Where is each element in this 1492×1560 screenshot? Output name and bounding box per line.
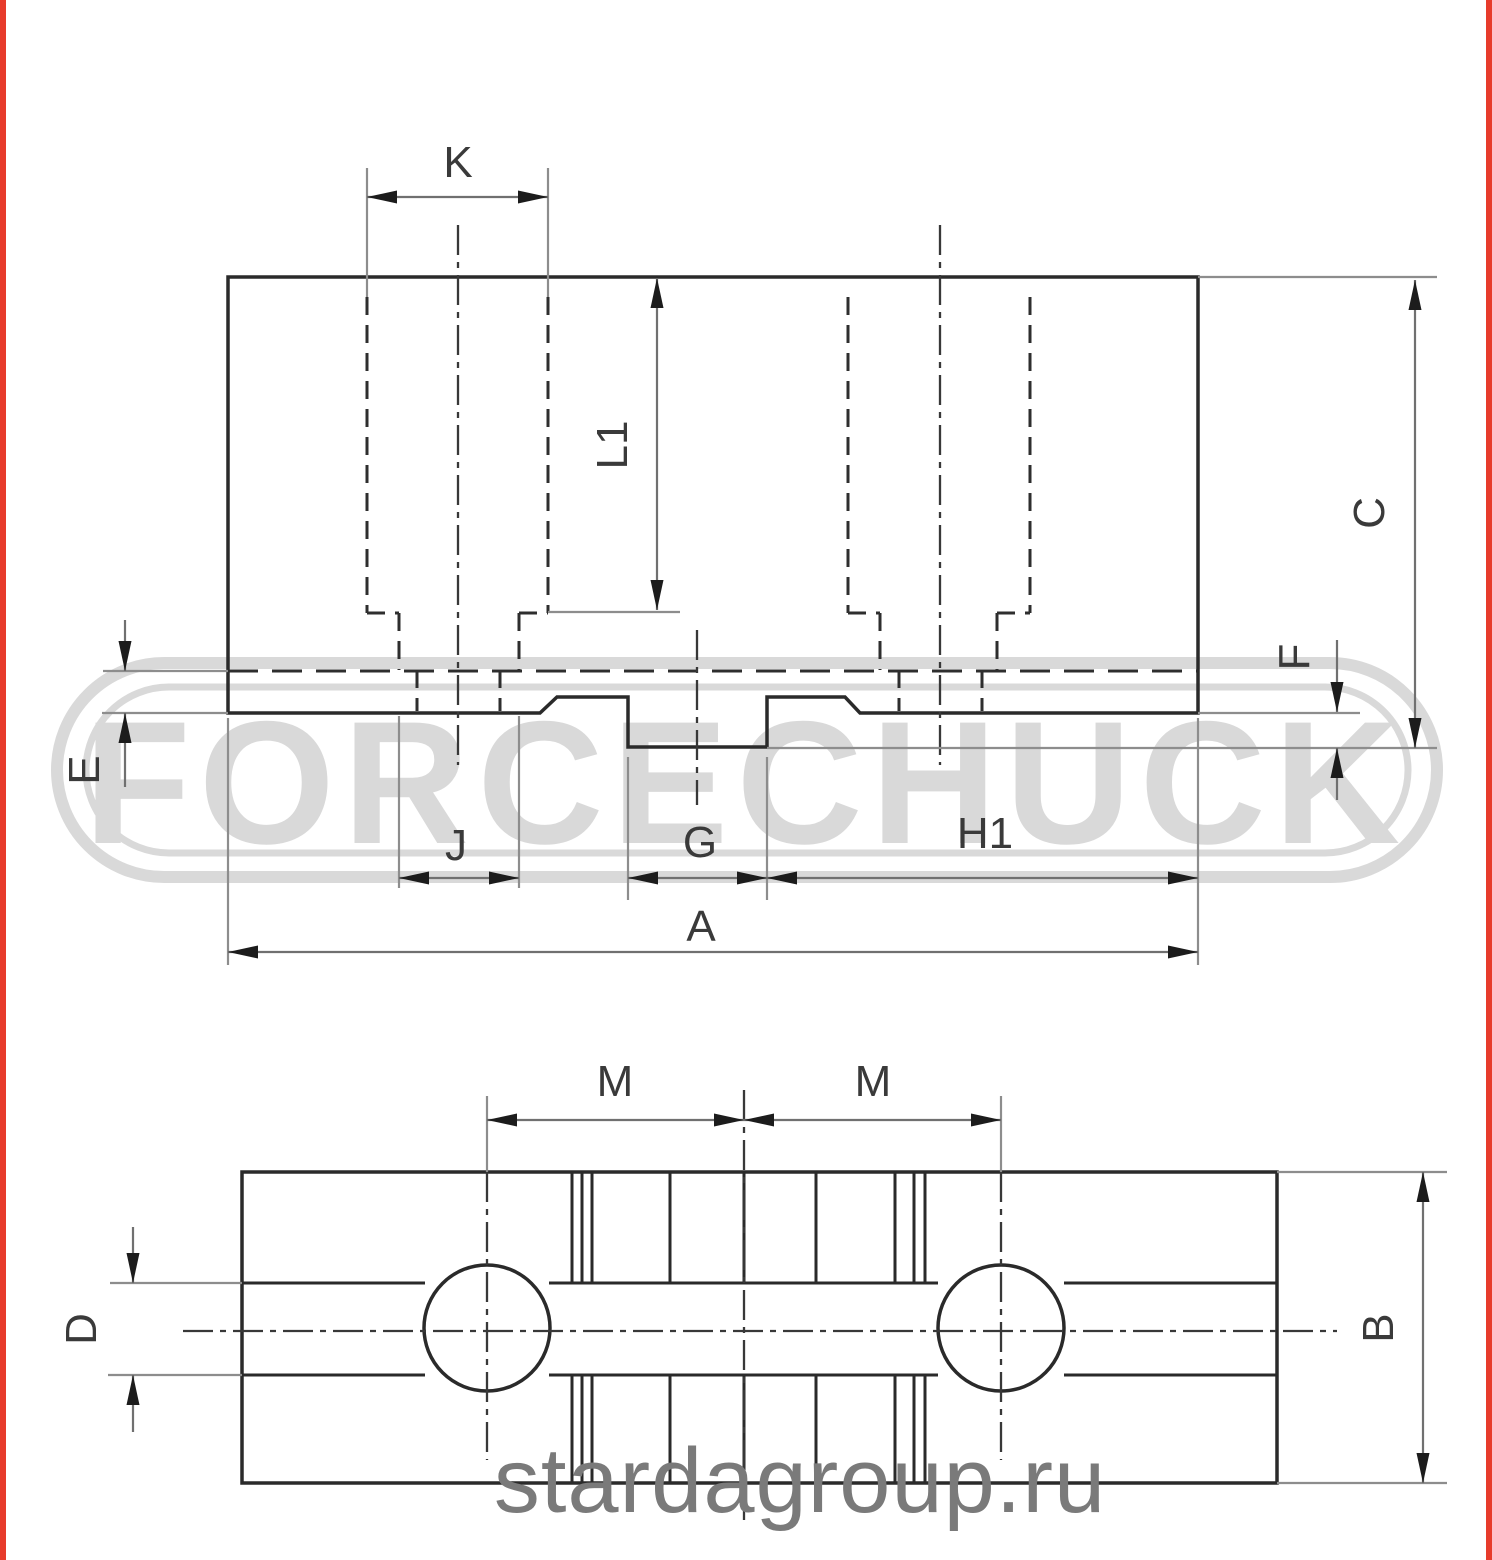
bottom-view-extension-lines bbox=[108, 1096, 1447, 1483]
dim-label-h1: H1 bbox=[957, 809, 1013, 858]
watermark-brand-text: FORCECHUCK bbox=[84, 686, 1408, 881]
red-edge-right bbox=[1486, 0, 1492, 1560]
technical-drawing-svg: FORCECHUCK bbox=[0, 0, 1492, 1560]
bottom-view-slot-lines bbox=[242, 1283, 1277, 1375]
dim-label-c: C bbox=[1345, 497, 1394, 529]
bottom-view-arrowheads bbox=[127, 1114, 1430, 1484]
dim-label-m-right: M bbox=[855, 1057, 892, 1106]
dim-label-l1: L1 bbox=[588, 421, 637, 470]
watermark-logo: FORCECHUCK bbox=[57, 663, 1437, 881]
dim-label-j: J bbox=[445, 821, 467, 870]
dim-label-d: D bbox=[57, 1313, 106, 1345]
dim-label-g: G bbox=[683, 818, 717, 867]
dim-label-f: F bbox=[1270, 644, 1319, 671]
watermark-site-text: stardagroup.ru bbox=[494, 1430, 1106, 1532]
bottom-view-dimension-lines bbox=[133, 1120, 1423, 1483]
top-view-hidden-lines bbox=[228, 297, 1197, 711]
dim-label-m-left: M bbox=[597, 1057, 634, 1106]
dim-label-a: A bbox=[686, 902, 716, 951]
dim-label-k: K bbox=[443, 138, 472, 187]
red-edge-left bbox=[0, 0, 6, 1560]
dim-label-b: B bbox=[1354, 1313, 1403, 1342]
top-view-body-outline bbox=[228, 277, 1198, 747]
drawing-page: FORCECHUCK bbox=[0, 0, 1492, 1560]
dim-label-e: E bbox=[60, 755, 109, 784]
